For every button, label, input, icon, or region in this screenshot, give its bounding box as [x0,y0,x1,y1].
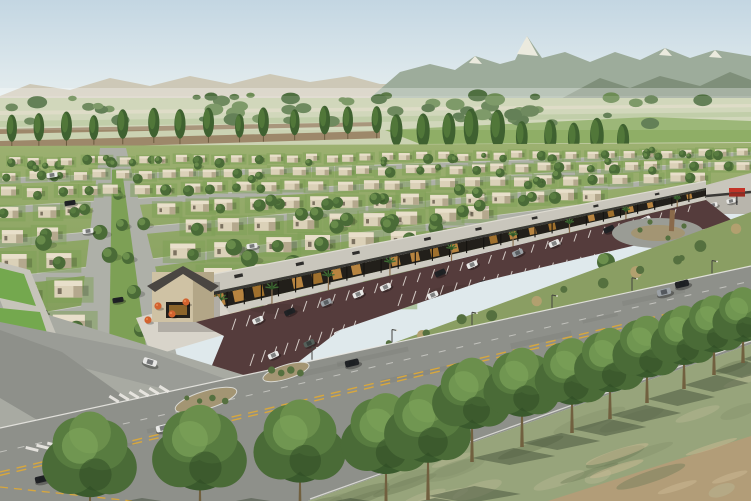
rendering-stage [0,0,751,501]
aerial-rendering [0,0,751,501]
